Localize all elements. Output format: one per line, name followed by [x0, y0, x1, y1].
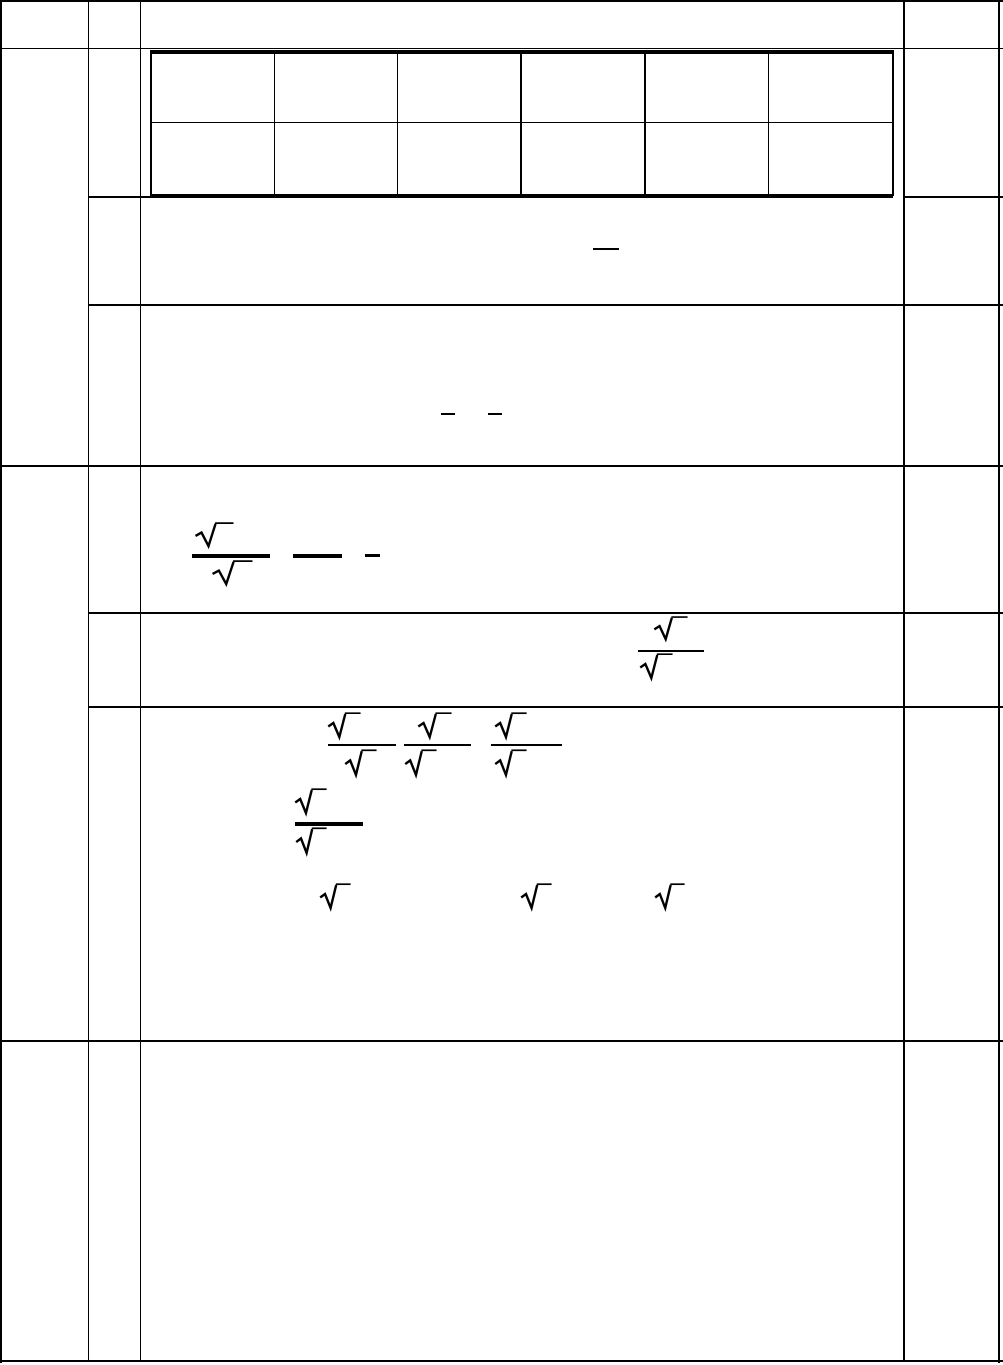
short-dash-row5	[365, 554, 380, 557]
row-line-2-right-seg	[904, 196, 1003, 198]
nested-grid-row-line	[150, 122, 892, 124]
outer-border-left	[0, 0, 2, 1363]
radical-row7-frac2-denominator-sqrt-icon	[404, 748, 437, 777]
row-line-7	[0, 1040, 1003, 1042]
nested-grid-col-line-1	[274, 51, 276, 196]
fraction-bar-row3	[593, 248, 619, 251]
minus-dash-row4-b	[488, 413, 502, 415]
nested-grid-border-right	[892, 50, 894, 196]
radical-row7-frac4-denominator-sqrt-icon	[295, 826, 327, 855]
fraction-bar-row7-a	[328, 744, 396, 746]
radical-row7-frac1-denominator-sqrt-icon	[344, 748, 377, 777]
minus-dash-row4-a	[441, 413, 455, 415]
radical-row6-numerator-sqrt-icon	[653, 615, 688, 641]
fraction-bar-row7-b	[404, 744, 471, 746]
radical-row5-denominator-sqrt-icon	[211, 559, 253, 586]
row-line-6	[88, 706, 1003, 708]
radical-row5-numerator-sqrt-icon	[194, 521, 234, 548]
nested-grid-col-line-5	[768, 51, 770, 196]
radical-row7-standalone-2-sqrt-icon	[520, 882, 552, 910]
radical-row7-frac1-numerator-sqrt-icon	[327, 711, 361, 739]
nested-grid-col-line-4	[644, 51, 646, 196]
radical-row7-frac2-numerator-sqrt-icon	[417, 711, 452, 739]
radical-row7-frac3-denominator-sqrt-icon	[494, 748, 527, 777]
outer-border-bottom	[0, 1360, 1003, 1362]
column-divider-2	[140, 0, 142, 1361]
fraction-bar-row7-c	[491, 744, 562, 746]
column-divider-1	[88, 0, 90, 1361]
radical-row7-standalone-3-sqrt-icon	[654, 882, 685, 910]
column-divider-3	[903, 0, 905, 1361]
fraction-bar-row5	[192, 554, 270, 558]
nested-grid-col-line-3	[520, 51, 522, 196]
radical-row7-standalone-1-sqrt-icon	[319, 882, 351, 910]
long-dash-row5	[293, 554, 342, 558]
radical-row6-denominator-sqrt-icon	[639, 652, 673, 680]
nested-grid-col-line-2	[397, 51, 399, 196]
worksheet-table	[0, 0, 1003, 1365]
radical-row7-frac4-numerator-sqrt-icon	[294, 787, 327, 815]
outer-border-right	[998, 0, 1000, 1363]
fraction-bar-row7-d	[295, 822, 363, 826]
outer-border-top	[0, 0, 1003, 2]
radical-row7-frac3-numerator-sqrt-icon	[494, 711, 527, 739]
scanned-worksheet-page	[0, 0, 1003, 1365]
row-line-4	[0, 465, 1003, 467]
row-line-3	[88, 304, 1003, 306]
row-line-5	[88, 612, 1003, 614]
row-line-2-left-seg	[88, 196, 151, 198]
